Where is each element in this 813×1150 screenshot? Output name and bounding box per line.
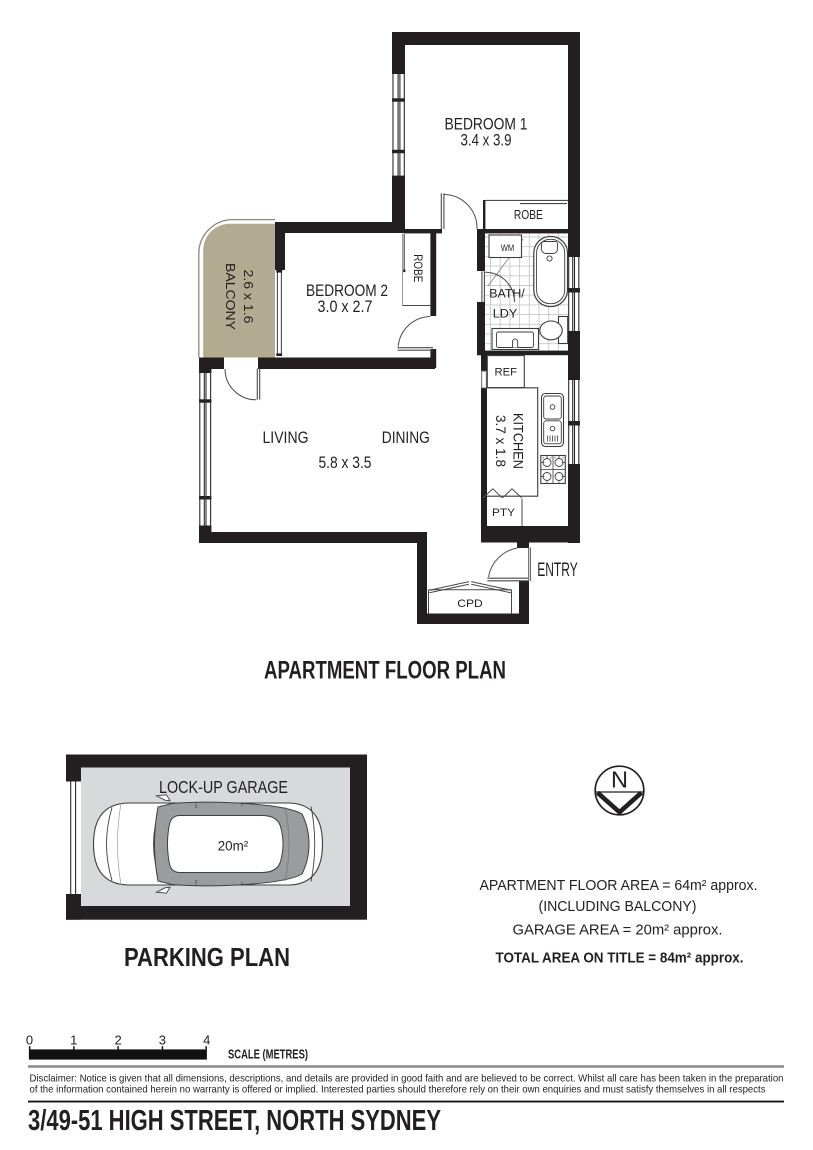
svg-text:GARAGE AREA = 20m² approx.: GARAGE AREA = 20m² approx. <box>513 923 723 939</box>
svg-text:20m²: 20m² <box>218 839 249 854</box>
svg-text:LIVING: LIVING <box>263 429 309 447</box>
svg-text:WM: WM <box>501 243 515 254</box>
svg-text:N: N <box>611 767 628 793</box>
svg-text:LOCK-UP GARAGE: LOCK-UP GARAGE <box>159 777 288 797</box>
svg-text:BALCONY: BALCONY <box>223 263 238 330</box>
svg-text:CPD: CPD <box>457 598 483 610</box>
svg-text:2.6 x 1.6: 2.6 x 1.6 <box>241 270 256 324</box>
svg-text:Disclaimer: Notice is given th: Disclaimer: Notice is given that all dim… <box>30 1074 784 1085</box>
svg-text:3/49-51 HIGH STREET, NORTH SYD: 3/49-51 HIGH STREET, NORTH SYDNEY <box>28 1105 441 1137</box>
svg-text:APARTMENT FLOOR PLAN: APARTMENT FLOOR PLAN <box>264 657 506 685</box>
svg-text:0: 0 <box>26 1033 33 1048</box>
svg-text:3.4 x 3.9: 3.4 x 3.9 <box>461 132 512 150</box>
svg-text:of the information contained h: of the information contained herein no w… <box>30 1085 766 1096</box>
svg-text:(INCLUDING BALCONY): (INCLUDING BALCONY) <box>539 899 697 915</box>
svg-text:SCALE (METRES): SCALE (METRES) <box>228 1047 308 1061</box>
svg-text:5.8 x 3.5: 5.8 x 3.5 <box>319 454 372 472</box>
svg-text:ROBE: ROBE <box>411 254 424 282</box>
svg-text:4: 4 <box>203 1033 210 1048</box>
svg-text:2: 2 <box>114 1033 121 1048</box>
svg-text:3.7 x 1.8: 3.7 x 1.8 <box>493 415 508 467</box>
svg-text:PARKING PLAN: PARKING PLAN <box>124 944 290 972</box>
svg-text:ENTRY: ENTRY <box>537 560 578 581</box>
svg-text:3.0 x 2.7: 3.0 x 2.7 <box>318 298 373 316</box>
svg-text:REF: REF <box>495 367 518 379</box>
svg-text:KITCHEN: KITCHEN <box>511 413 526 469</box>
svg-text:PTY: PTY <box>492 507 515 519</box>
svg-text:LDY: LDY <box>493 306 518 320</box>
svg-text:TOTAL AREA ON TITLE = 84m² app: TOTAL AREA ON TITLE = 84m² approx. <box>496 951 744 967</box>
svg-text:ROBE: ROBE <box>514 208 543 222</box>
svg-text:DINING: DINING <box>382 429 430 447</box>
svg-text:APARTMENT FLOOR AREA = 64m² ap: APARTMENT FLOOR AREA = 64m² approx. <box>480 878 758 894</box>
svg-text:1: 1 <box>70 1033 77 1048</box>
svg-text:3: 3 <box>159 1033 166 1048</box>
svg-text:BATH/: BATH/ <box>489 286 525 300</box>
